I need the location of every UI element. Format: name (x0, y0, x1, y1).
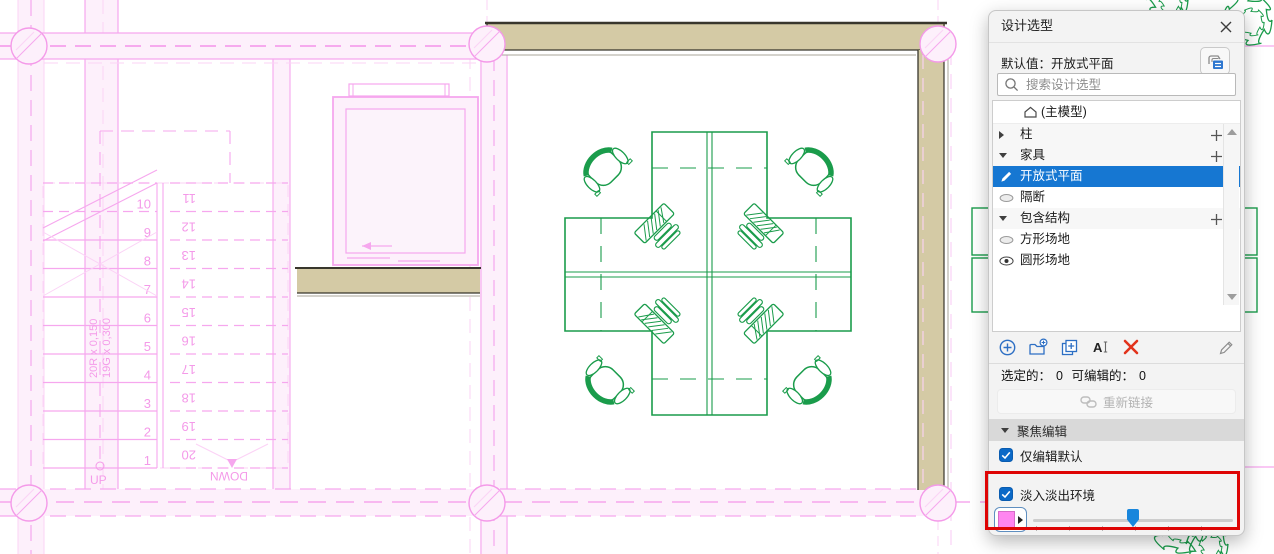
tree-row-label: (主模型) (1041, 101, 1087, 123)
rename-option-button[interactable]: A (1090, 337, 1110, 357)
options-cards-icon (1205, 52, 1225, 70)
add-option-icon[interactable] (1210, 149, 1223, 162)
delete-option-button[interactable] (1121, 337, 1141, 357)
fade-color-picker-button[interactable] (994, 507, 1027, 532)
tree-option-row[interactable]: 圆形场地 (993, 250, 1240, 271)
design-options-panel: 设计选型 默认值：开放式平面 (主模型) 柱家具开放式平面隔断包含结构方形场地圆… (988, 10, 1245, 536)
close-icon[interactable] (1218, 19, 1234, 35)
new-option-set-button[interactable] (1028, 337, 1048, 357)
color-swatch (998, 511, 1015, 528)
stair-tread-number: 12 (182, 220, 196, 235)
fade-intensity-slider[interactable] (1033, 505, 1233, 535)
checkbox-checked-icon[interactable] (999, 487, 1013, 501)
only-edit-default-label: 仅编辑默认 (1020, 446, 1083, 465)
tree-row-label: 方形场地 (1020, 229, 1070, 250)
desk-equipment (634, 203, 784, 344)
eye-open-icon[interactable] (996, 250, 1016, 271)
stair-tread-number: 16 (182, 334, 196, 349)
selected-label: 选定的： (1001, 369, 1051, 383)
stair-tread-number: 11 (183, 191, 197, 206)
default-value-label: 默认值：开放式平面 (1001, 55, 1114, 73)
stair-tread-number: 17 (182, 362, 196, 377)
tree-row-label: 隔断 (1020, 187, 1045, 208)
stair-tread-number: 15 (182, 305, 196, 320)
edit-option-pencil-button[interactable] (1216, 337, 1236, 357)
tree-row-label: 家具 (1020, 145, 1045, 166)
chain-link-icon (1080, 396, 1097, 408)
stair-going-text: 19G x 0,300 (101, 318, 113, 378)
tree-option-row[interactable]: 开放式平面 (993, 166, 1240, 187)
selected-count: 0 (1056, 369, 1063, 383)
editable-label: 可编辑的： (1071, 369, 1134, 383)
focus-edit-label: 聚焦编辑 (1017, 421, 1067, 440)
stair-tread-number: 18 (182, 391, 196, 406)
eye-closed-icon[interactable] (996, 187, 1016, 208)
chevron-down-icon (1001, 428, 1009, 433)
main-model-icon (1020, 101, 1040, 123)
stair-up-label: UP (90, 473, 107, 487)
scroll-up-icon[interactable] (1227, 129, 1237, 135)
scroll-down-icon[interactable] (1227, 294, 1237, 300)
add-option-icon[interactable] (1210, 128, 1223, 141)
chevron-right-icon[interactable] (999, 124, 1013, 145)
search-box[interactable] (997, 73, 1236, 96)
tree-category-row[interactable]: 柱 (993, 124, 1240, 145)
relink-label: 重新链接 (1103, 392, 1153, 411)
svg-text:A: A (1093, 340, 1103, 355)
focus-edit-section-header[interactable]: 聚焦编辑 (989, 419, 1244, 441)
tree-row-main-model[interactable]: (主模型) (993, 101, 1240, 124)
duplicate-option-button[interactable] (1059, 337, 1079, 357)
application-window: 1234567891011121314151617181920 20R x 0,… (0, 0, 1274, 554)
workstation-cluster[interactable] (565, 132, 851, 415)
stair-tread-number: 20 (182, 448, 196, 463)
relink-button[interactable]: 重新链接 (997, 389, 1236, 414)
stair-tread-number: 5 (144, 339, 151, 354)
stair-riser-text: 20R x 0,150 (88, 319, 100, 378)
chevron-down-icon[interactable] (999, 145, 1013, 166)
stair-tread-number: 3 (144, 396, 151, 411)
divider (989, 363, 1244, 364)
tree-row-label: 开放式平面 (1020, 166, 1083, 187)
desk-cross-outline (565, 132, 851, 415)
only-edit-default-checkbox-row[interactable]: 仅编辑默认 (999, 446, 1083, 464)
tree-category-row[interactable]: 包含结构 (993, 208, 1240, 229)
editable-count: 0 (1139, 369, 1146, 383)
selection-status: 选定的：0 可编辑的：0 (1001, 368, 1151, 384)
search-icon (1004, 77, 1019, 92)
slider-thumb[interactable] (1127, 509, 1139, 527)
tree-option-row[interactable]: 隔断 (993, 187, 1240, 208)
tree-option-row[interactable]: 方形场地 (993, 229, 1240, 250)
search-input[interactable] (1024, 77, 1229, 93)
eye-closed-icon[interactable] (996, 229, 1016, 250)
divider (989, 42, 1244, 43)
fade-environment-checkbox-row[interactable]: 淡入淡出环境 (999, 485, 1095, 503)
panel-title: 设计选型 (1001, 11, 1053, 41)
shaft-room (333, 84, 478, 265)
stair-tread-number: 19 (182, 419, 196, 434)
tree-row-label: 包含结构 (1020, 208, 1070, 229)
stair-tread-number: 10 (137, 197, 151, 212)
stair-tread-number: 4 (144, 368, 151, 383)
tree-scrollbar[interactable] (1223, 124, 1239, 305)
new-option-button[interactable] (997, 337, 1017, 357)
show-options-palette-button[interactable] (1200, 47, 1230, 75)
stair-tread-number: 13 (182, 248, 196, 263)
stair-tread-number: 8 (144, 254, 151, 269)
design-options-tree: (主模型) 柱家具开放式平面隔断包含结构方形场地圆形场地 (992, 100, 1241, 332)
fade-controls (993, 505, 1235, 535)
stairwell: 1234567891011121314151617181920 20R x 0,… (43, 131, 288, 487)
stair-tread-number: 2 (144, 425, 151, 440)
options-toolbar: A (997, 335, 1236, 359)
add-option-icon[interactable] (1210, 212, 1223, 225)
checkbox-checked-icon[interactable] (999, 448, 1013, 462)
pencil-icon[interactable] (996, 166, 1016, 187)
tree-category-row[interactable]: 家具 (993, 145, 1240, 166)
stair-tread-number: 14 (182, 277, 196, 292)
tree-row-label: 柱 (1020, 124, 1033, 145)
stair-tread-number: 6 (144, 311, 151, 326)
office-chairs (575, 139, 841, 412)
fade-environment-label: 淡入淡出环境 (1020, 485, 1095, 504)
desk-dividers (565, 132, 851, 415)
dropdown-arrow-icon (1018, 516, 1023, 524)
stair-down-label: DOWN (210, 469, 248, 483)
stair-tread-number: 1 (144, 453, 151, 468)
chevron-down-icon[interactable] (999, 208, 1013, 229)
tree-row-label: 圆形场地 (1020, 250, 1070, 271)
